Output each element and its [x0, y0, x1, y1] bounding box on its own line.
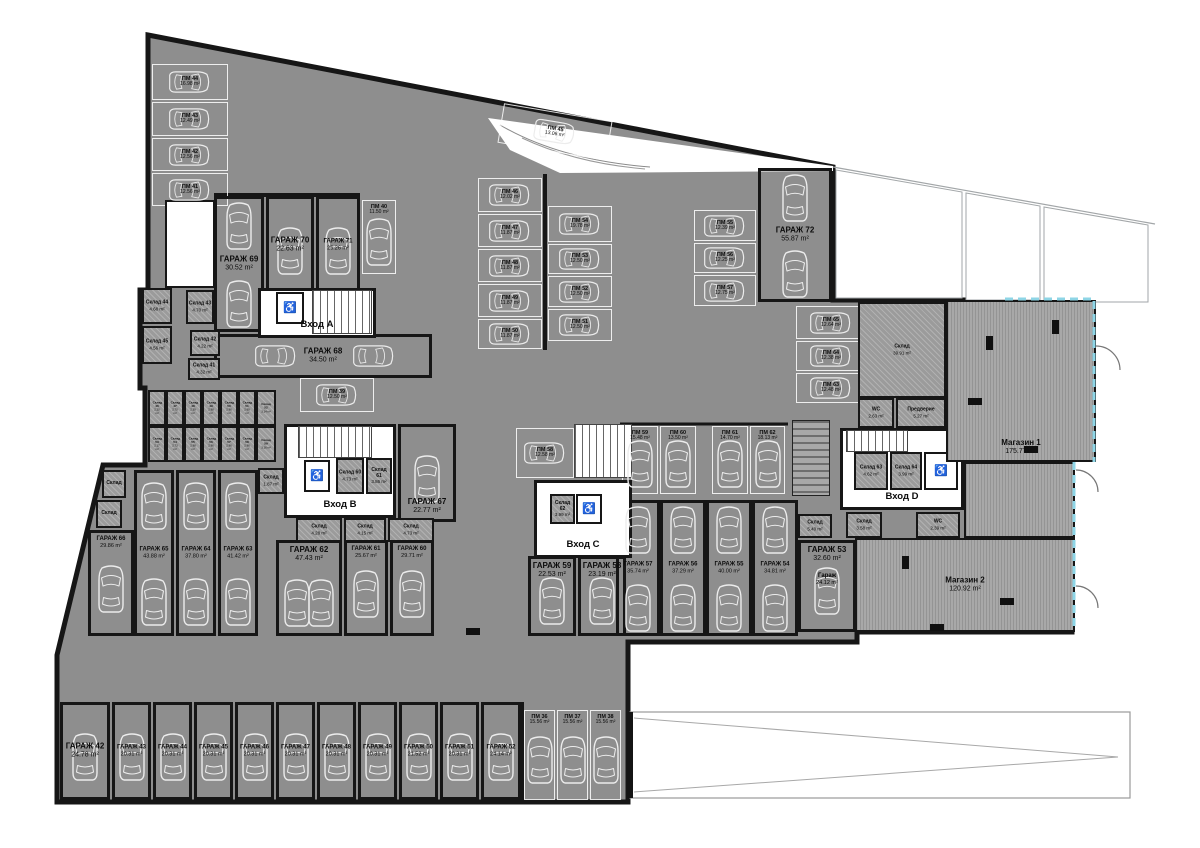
sklad-d1: Склад3.58 m²: [846, 512, 882, 538]
pm-61-area: 14.70 m²: [713, 436, 747, 442]
garage-50-name: ГАРАЖ 50: [402, 745, 435, 752]
pm-65-label: ПМ 6512.64 m²: [797, 317, 865, 329]
garage-69-name: ГАРАЖ 69: [217, 256, 261, 265]
sklad-48-name: Склад 48: [189, 401, 198, 408]
car-icon: [762, 504, 788, 554]
car-glyph: [353, 568, 379, 618]
sklad-t1-label: Склад: [104, 481, 124, 487]
garage-51: ГАРАЖ 5120.31 m²: [440, 702, 479, 800]
ramp-strip: [792, 420, 830, 496]
garage-47-area: 20.31 m²: [279, 751, 312, 757]
garage-59-area: 22.53 m²: [531, 571, 573, 579]
garage-61-label: ГАРАЖ 6125.67 m²: [347, 546, 385, 559]
car-icon: [353, 568, 379, 618]
sklad-54: Склад 542.73 m²: [166, 426, 184, 462]
stairs-b: [298, 426, 372, 458]
car-icon: [716, 582, 742, 632]
car-glyph: [183, 576, 209, 626]
sklad-63: Склад 634.62 m²: [854, 452, 888, 490]
pm-49-label: ПМ 4911.87 m²: [479, 295, 541, 307]
car-glyph: [399, 568, 425, 618]
sklad-64: Склад 643.99 m²: [890, 452, 922, 490]
pm-57-label: ПМ 5712.75 m²: [695, 285, 755, 297]
garage-42-label: ГАРАЖ 4224.78 m²: [63, 743, 107, 760]
pm-60: ПМ 6013.50 m²: [660, 426, 696, 494]
sklad-42-area: 4.22 m²: [192, 343, 218, 348]
sklad-187: Склад1.87 m²: [258, 468, 284, 494]
sklad-b2-area: 4.15 m²: [346, 530, 384, 535]
sklad-44: Склад 444.68 m²: [142, 288, 172, 324]
garage-66-name: ГАРАЖ 66: [91, 536, 131, 543]
garage-72: ГАРАЖ 7255.87 m²: [758, 168, 832, 302]
garage-62-area: 47.43 m²: [279, 555, 339, 563]
sklad-43: Склад 434.70 m²: [186, 290, 214, 324]
garage-53-sublabel: Гараж24.12 m²: [801, 573, 853, 586]
garage-59: ГАРАЖ 5922.53 m²: [528, 556, 576, 636]
garage-52: ГАРАЖ 5224.14 m²: [481, 702, 521, 800]
sklad-49: Склад 492.98 m²: [202, 390, 220, 426]
garage-48-area: 20.31 m²: [320, 751, 353, 757]
wc-1-area: 2.63 m²: [860, 413, 892, 418]
car-icon: [183, 480, 209, 530]
sklad-g53-area: 5.40 m²: [800, 526, 830, 531]
sklad-b1-label: Склад4.28 m²: [298, 525, 340, 536]
sklad-56: Склад 562.96 m²: [202, 426, 220, 462]
car-glyph: [225, 576, 251, 626]
garage-62-label: ГАРАЖ 6247.43 m²: [279, 546, 339, 563]
sklad-59-area: 3.16 m²: [261, 446, 271, 449]
car-icon: [226, 200, 252, 250]
pm-48: ПМ 4811.87 m²: [478, 249, 542, 282]
sklad-45-area: 4.56 m²: [144, 345, 170, 350]
pm-43-area: 12.49 m²: [153, 119, 227, 125]
garage-67: ГАРАЖ 6722.77 m²: [398, 424, 456, 522]
garage-57-area: 35.74 m²: [619, 568, 657, 574]
garage-50-area: 21.52 m²: [402, 751, 435, 757]
sklad-55-area: 2.98 m²: [189, 444, 198, 450]
sklad-47: Склад 472.70 m²: [166, 390, 184, 426]
garage-47-name: ГАРАЖ 47: [279, 745, 312, 752]
sklad-46-area: 2.20 m²: [153, 408, 162, 414]
pm-59: ПМ 5915.48 m²: [622, 426, 658, 494]
garage-44-label: ГАРАЖ 4420.31 m²: [156, 745, 189, 758]
sklad-46-name: Склад 46: [153, 401, 162, 408]
garage-42-name: ГАРАЖ 42: [63, 743, 107, 752]
garage-43-area: 20.31 m²: [115, 751, 148, 757]
garage-53-label: ГАРАЖ 5332.60 m²: [801, 546, 853, 563]
pm-50-area: 11.87 m²: [479, 334, 541, 340]
garage-71-area: 25.26 m²: [319, 245, 357, 251]
sklad-62-name: Склад 62: [552, 501, 573, 512]
sklad-50-label: Склад 502.96 m²: [225, 401, 234, 414]
sklad-42: Склад 424.22 m²: [190, 330, 220, 356]
vhod-c-name: Вход C: [537, 540, 629, 551]
garage-70-label: ГАРАЖ 7022.63 m²: [269, 237, 311, 254]
pm-44-area: 16.98 m²: [153, 82, 227, 88]
sklad-b2-label: Склад4.15 m²: [346, 525, 384, 536]
sklad-64-name: Склад 64: [892, 466, 920, 472]
garage-66: ГАРАЖ 6629.86 m²: [88, 530, 134, 636]
sklad-61-area: 3.86 m²: [368, 479, 390, 484]
sklad-41: Склад 414.32 m²: [188, 358, 220, 380]
sklad-52-name: Склад 52: [261, 403, 271, 410]
sklad-43-area: 4.70 m²: [188, 307, 212, 312]
car-glyph: [414, 453, 440, 503]
pm-38: ПМ 3815.56 m²: [590, 710, 621, 800]
sklad-47-area: 2.70 m²: [171, 408, 180, 414]
car-glyph: [366, 216, 392, 266]
car-glyph: [284, 577, 310, 627]
shop-1-name: Магазин 1: [948, 439, 1094, 448]
garage-67-name: ГАРАЖ 67: [401, 498, 453, 507]
sklad-t1-name: Склад: [104, 481, 124, 487]
pm-53: ПМ 5312.50 m²: [548, 244, 612, 274]
wc-2-label: WC2.39 m²: [918, 520, 958, 531]
sklad-60-area: 4.73 m²: [338, 476, 362, 481]
car-icon: [308, 577, 334, 627]
garage-53-subarea: 24.12 m²: [801, 580, 853, 586]
garage-66-area: 29.86 m²: [91, 543, 131, 549]
sklad-49-area: 2.98 m²: [207, 408, 216, 414]
garage-53-name: ГАРАЖ 53: [801, 546, 853, 555]
sklad-42-name: Склад 42: [192, 338, 218, 344]
vhod-b-label: Вход B: [287, 500, 393, 511]
sklad-62-label: Склад 623.99 m²: [552, 501, 573, 517]
pm-43-label: ПМ 4312.49 m²: [153, 113, 227, 125]
garage-58-name: ГАРАЖ 58: [581, 562, 623, 571]
sklad-187-label: Склад1.87 m²: [260, 476, 282, 487]
car-glyph: [560, 734, 586, 784]
sklad-50: Склад 502.96 m²: [220, 390, 238, 426]
elevator-a: ♿: [276, 292, 304, 324]
pm-58-area: 12.58 m²: [517, 453, 573, 459]
garage-49-area: 20.31 m²: [361, 751, 394, 757]
garage-69-area: 30.52 m²: [217, 265, 261, 273]
garage-56: ГАРАЖ 5637.29 m²: [660, 500, 706, 636]
car-glyph: [762, 504, 788, 554]
sklad-b3-area: 4.73 m²: [390, 530, 432, 535]
garage-57-name: ГАРАЖ 57: [619, 562, 657, 569]
sklad-51: Склад 512.69 m²: [238, 390, 256, 426]
garage-62: ГАРАЖ 6247.43 m²: [276, 540, 342, 636]
garage-49-label: ГАРАЖ 4920.31 m²: [361, 745, 394, 758]
garage-49: ГАРАЖ 4920.31 m²: [358, 702, 397, 800]
car-icon: [141, 576, 167, 626]
garage-46-name: ГАРАЖ 46: [238, 745, 271, 752]
car-icon: [755, 438, 781, 488]
car-icon: [225, 576, 251, 626]
pm-57-area: 12.75 m²: [695, 291, 755, 297]
sklad-63-area: 4.62 m²: [856, 471, 886, 476]
sklad-g53-label: Склад5.40 m²: [800, 521, 830, 532]
car-icon: [593, 734, 619, 784]
sklad-48-area: 2.39 m²: [189, 408, 198, 414]
garage-60-area: 29.71 m²: [393, 553, 431, 559]
car-glyph: [716, 582, 742, 632]
wheelchair-icon: ♿: [283, 303, 297, 314]
sklad-big-area: 39.91 m²: [860, 350, 944, 355]
pm-54-label: ПМ 5419.78 m²: [549, 218, 611, 230]
pm-55-label: ПМ 5512.39 m²: [695, 220, 755, 232]
garage-61: ГАРАЖ 6125.67 m²: [344, 540, 388, 636]
pm-39-area: 12.50 m²: [301, 395, 373, 401]
pm-47-area: 11.87 m²: [479, 231, 541, 237]
garage-64-label: ГАРАЖ 6437.80 m²: [179, 547, 213, 560]
pm-47: ПМ 4711.87 m²: [478, 214, 542, 247]
wheelchair-icon: ♿: [582, 504, 596, 515]
sklad-47-name: Склад 47: [171, 401, 180, 408]
pm-50-label: ПМ 5011.87 m²: [479, 328, 541, 340]
car-icon: [226, 278, 252, 328]
elevator-b: ♿: [304, 460, 330, 492]
sklad-49-label: Склад 492.98 m²: [207, 401, 216, 414]
sklad-big: Склад39.91 m²: [858, 302, 946, 398]
garage-70-area: 22.63 m²: [269, 246, 311, 254]
pm-43: ПМ 4312.49 m²: [152, 102, 228, 136]
pm-64-area: 12.38 m²: [797, 356, 865, 362]
sklad-58: Склад 582.96 m²: [238, 426, 256, 462]
car-glyph: [627, 438, 653, 488]
car-glyph: [141, 576, 167, 626]
sklad-53-name: Склад 53: [153, 437, 162, 444]
room-top-left: [165, 200, 215, 288]
pm-42: ПМ 4212.56 m²: [152, 138, 228, 171]
garage-68-area: 34.50 m²: [217, 357, 429, 365]
sklad-56-label: Склад 562.96 m²: [207, 437, 216, 450]
pm-63: ПМ 6312.48 m²: [796, 373, 866, 403]
sklad-62: Склад 623.99 m²: [550, 494, 575, 524]
garage-54-name: ГАРАЖ 54: [755, 562, 795, 569]
pm-60-area: 13.50 m²: [661, 436, 695, 442]
pm-65: ПМ 6512.64 m²: [796, 306, 866, 339]
sklad-52: Склад 523.14 m²: [256, 390, 276, 426]
garage-47: ГАРАЖ 4720.31 m²: [276, 702, 315, 800]
car-icon: [366, 216, 392, 266]
car-icon: [782, 172, 808, 222]
sklad-57: Склад 572.96 m²: [220, 426, 238, 462]
sklad-41-area: 4.32 m²: [190, 369, 218, 374]
garage-53: ГАРАЖ 5332.60 m²Гараж24.12 m²: [798, 540, 856, 632]
sklad-44-area: 4.68 m²: [144, 306, 170, 311]
sklad-46: Склад 462.20 m²: [148, 390, 166, 426]
shop-2-name: Магазин 2: [857, 577, 1073, 586]
sklad-47-label: Склад 472.70 m²: [171, 401, 180, 414]
pm-53-area: 12.50 m²: [549, 259, 611, 265]
sklad-big-label: Склад39.91 m²: [860, 345, 944, 356]
floorplan-canvas: ПМ 4416.98 m²ПМ 4312.49 m²ПМ 4212.56 m²П…: [0, 0, 1200, 848]
garage-46-area: 20.31 m²: [238, 751, 271, 757]
pm-61: ПМ 6114.70 m²: [712, 426, 748, 494]
car-glyph: [670, 582, 696, 632]
garage-50: ГАРАЖ 5021.52 m²: [399, 702, 438, 800]
pm-45: ПМ 4513.06 m²: [497, 103, 612, 161]
pm-49-area: 11.87 m²: [479, 301, 541, 307]
wc-1-label: WC2.63 m²: [860, 408, 892, 419]
sklad-51-name: Склад 51: [243, 401, 252, 408]
shop-1-label: Магазин 1175.77 m²: [948, 439, 1094, 456]
pm-49: ПМ 4911.87 m²: [478, 284, 542, 317]
sklad-b2: Склад4.15 m²: [344, 518, 386, 542]
pm-40: ПМ 4011.50 m²: [362, 200, 396, 274]
sklad-55-name: Склад 55: [189, 437, 198, 444]
predverie-label: Предверие5.27 m²: [898, 408, 944, 419]
pm-59-label: ПМ 5915.48 m²: [623, 430, 657, 442]
pm-64-label: ПМ 6412.38 m²: [797, 350, 865, 362]
pm-59-area: 15.48 m²: [623, 436, 657, 442]
sklad-63-label: Склад 634.62 m²: [856, 466, 886, 477]
sklad-60: Склад 604.73 m²: [336, 458, 364, 494]
pm-38-label: ПМ 3815.56 m²: [591, 714, 620, 726]
sklad-44-name: Склад 44: [144, 301, 170, 307]
garage-71-label: ГАРАЖ 7125.26 m²: [319, 239, 357, 252]
car-glyph: [539, 575, 565, 625]
garage-55-name: ГАРАЖ 55: [709, 562, 749, 569]
sklad-63-name: Склад 63: [856, 466, 886, 472]
garage-48: ГАРАЖ 4820.31 m²: [317, 702, 356, 800]
sklad-t2-label: Склад: [98, 511, 120, 517]
garage-68-label: ГАРАЖ 6834.50 m²: [217, 348, 429, 365]
sklad-b1-area: 4.28 m²: [298, 530, 340, 535]
wheelchair-icon: ♿: [934, 466, 948, 477]
sklad-64-label: Склад 643.99 m²: [892, 466, 920, 477]
car-glyph: [593, 734, 619, 784]
sklad-64-area: 3.99 m²: [892, 471, 920, 476]
garage-70-name: ГАРАЖ 70: [269, 237, 311, 246]
sklad-t2: Склад: [96, 500, 122, 528]
sklad-62-area: 3.99 m²: [552, 512, 573, 517]
sklad-53-area: 2.17 m²: [153, 444, 162, 450]
car-glyph: [716, 504, 742, 554]
sklad-54-area: 2.73 m²: [171, 444, 180, 450]
car-glyph: [141, 480, 167, 530]
sklad-60-label: Склад 604.73 m²: [338, 471, 362, 482]
garage-66-label: ГАРАЖ 6629.86 m²: [91, 536, 131, 549]
shop-2-area: 120.92 m²: [857, 586, 1073, 594]
pm-51-area: 12.50 m²: [549, 325, 611, 331]
car-icon: [225, 480, 251, 530]
garage-50-label: ГАРАЖ 5021.52 m²: [402, 745, 435, 758]
sklad-41-name: Склад 41: [190, 364, 218, 370]
car-icon: [98, 563, 124, 613]
pm-62: ПМ 6218.13 m²: [750, 426, 785, 494]
sklad-58-label: Склад 582.96 m²: [243, 437, 252, 450]
garage-67-label: ГАРАЖ 6722.77 m²: [401, 498, 453, 515]
garage-52-area: 24.14 m²: [484, 751, 518, 757]
pm-56-label: ПМ 5612.25 m²: [695, 252, 755, 264]
pm-51: ПМ 5112.50 m²: [548, 309, 612, 341]
stairs-d: [846, 430, 908, 452]
pm-60-label: ПМ 6013.50 m²: [661, 430, 695, 442]
pm-56-area: 12.25 m²: [695, 258, 755, 264]
pm-58: ПМ 5812.58 m²: [516, 428, 574, 478]
sklad-50-name: Склад 50: [225, 401, 234, 408]
shop-1x: [964, 462, 1075, 538]
pm-44-label: ПМ 4416.98 m²: [153, 76, 227, 88]
pm-62-area: 18.13 m²: [751, 436, 784, 442]
car-glyph: [527, 734, 553, 784]
garage-43-label: ГАРАЖ 4320.31 m²: [115, 745, 148, 758]
car-icon: [399, 568, 425, 618]
car-icon: [670, 504, 696, 554]
car-icon: [527, 734, 553, 784]
sklad-43-name: Склад 43: [188, 302, 212, 308]
garage-56-label: ГАРАЖ 5637.29 m²: [663, 562, 703, 575]
sklad-43-label: Склад 434.70 m²: [188, 302, 212, 313]
garage-69: ГАРАЖ 6930.52 m²: [214, 196, 264, 332]
pm-55: ПМ 5512.39 m²: [694, 210, 756, 241]
sklad-56-name: Склад 56: [207, 437, 216, 444]
car-icon: [717, 438, 743, 488]
car-icon: [183, 576, 209, 626]
garage-68: ГАРАЖ 6834.50 m²: [214, 334, 432, 378]
pm-39: ПМ 3912.50 m²: [300, 378, 374, 412]
garage-58-area: 23.19 m²: [581, 571, 623, 579]
sklad-44-label: Склад 444.68 m²: [144, 301, 170, 312]
garage-59-name: ГАРАЖ 59: [531, 562, 573, 571]
sklad-187-name: Склад: [260, 476, 282, 482]
pm-50: ПМ 5011.87 m²: [478, 319, 542, 349]
sklad-61-label: Склад 613.86 m²: [368, 468, 390, 484]
pm-61-label: ПМ 6114.70 m²: [713, 430, 747, 442]
shop-1: Магазин 1175.77 m²: [946, 300, 1096, 462]
pm-37: ПМ 3715.56 m²: [557, 710, 588, 800]
garage-65-label: ГАРАЖ 6543.88 m²: [137, 547, 171, 560]
garage-61-name: ГАРАЖ 61: [347, 546, 385, 553]
garage-48-label: ГАРАЖ 4820.31 m²: [320, 745, 353, 758]
sklad-53: Склад 532.17 m²: [148, 426, 166, 462]
garage-69-label: ГАРАЖ 6930.52 m²: [217, 256, 261, 273]
pm-40-label: ПМ 4011.50 m²: [363, 204, 395, 216]
garage-67-area: 22.77 m²: [401, 507, 453, 515]
garage-65-name: ГАРАЖ 65: [137, 547, 171, 554]
pm-63-label: ПМ 6312.48 m²: [797, 382, 865, 394]
sklad-48-label: Склад 482.39 m²: [189, 401, 198, 414]
garage-71-name: ГАРАЖ 71: [319, 239, 357, 246]
wheelchair-icon: ♿: [310, 471, 324, 482]
sklad-45-label: Склад 454.56 m²: [144, 340, 170, 351]
garage-68-name: ГАРАЖ 68: [217, 348, 429, 357]
garage-56-area: 37.29 m²: [663, 568, 703, 574]
car-glyph: [589, 575, 615, 625]
sklad-b3-label: Склад4.73 m²: [390, 525, 432, 536]
car-glyph: [755, 438, 781, 488]
garage-48-name: ГАРАЖ 48: [320, 745, 353, 752]
sklad-61-name: Склад 61: [368, 468, 390, 479]
garage-46-label: ГАРАЖ 4620.31 m²: [238, 745, 271, 758]
sklad-d1-label: Склад3.58 m²: [848, 520, 880, 531]
pm-46: ПМ 4612.02 m²: [478, 178, 542, 212]
garage-42-area: 24.78 m²: [63, 752, 107, 760]
pm-58-label: ПМ 5812.58 m²: [517, 447, 573, 459]
vhod-a-label: Вход A: [261, 320, 373, 331]
sklad-57-label: Склад 572.96 m²: [225, 437, 234, 450]
garage-54-area: 34.81 m²: [755, 568, 795, 574]
garage-60-name: ГАРАЖ 60: [393, 546, 431, 553]
sklad-53-label: Склад 532.17 m²: [153, 437, 162, 450]
sklad-55-label: Склад 552.98 m²: [189, 437, 198, 450]
wc-2: WC2.39 m²: [916, 512, 960, 538]
garage-72-name: ГАРАЖ 72: [761, 227, 829, 236]
car-glyph: [98, 563, 124, 613]
sklad-59-name: Склад 59: [261, 439, 271, 446]
predverie-area: 5.27 m²: [898, 413, 944, 418]
garage-45-label: ГАРАЖ 4520.31 m²: [197, 745, 230, 758]
garage-45-name: ГАРАЖ 45: [197, 745, 230, 752]
pm-42-area: 12.56 m²: [153, 155, 227, 161]
wc-2-area: 2.39 m²: [918, 525, 958, 530]
garage-52-label: ГАРАЖ 5224.14 m²: [484, 745, 518, 758]
shop-1-area: 175.77 m²: [948, 448, 1094, 456]
